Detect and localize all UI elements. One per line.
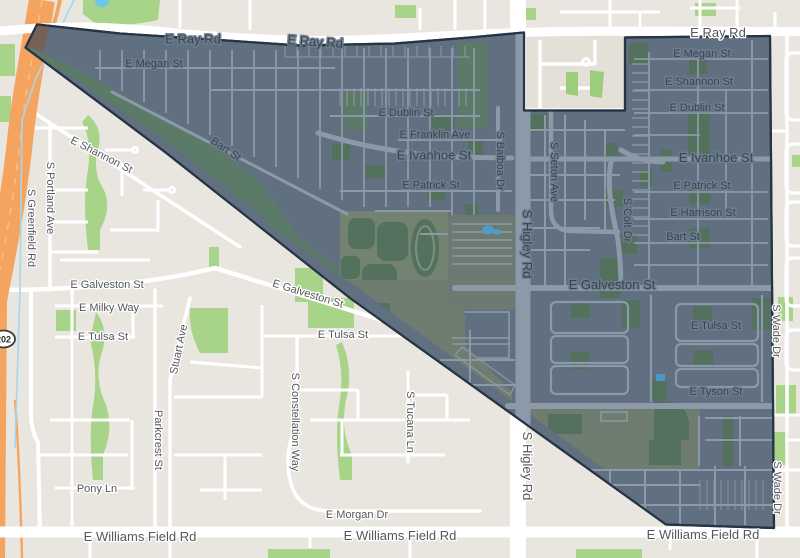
svg-text:Parkcrest St: Parkcrest St — [152, 410, 164, 470]
svg-text:S Greenfield Rd: S Greenfield Rd — [25, 189, 37, 267]
svg-text:E Morgan Dr: E Morgan Dr — [326, 509, 389, 521]
svg-text:S Colt Dr: S Colt Dr — [621, 198, 633, 243]
svg-text:S Balboa Dr: S Balboa Dr — [494, 131, 506, 191]
svg-text:S Tucana Ln: S Tucana Ln — [404, 391, 416, 453]
svg-text:E Williams Field Rd: E Williams Field Rd — [344, 528, 457, 543]
svg-text:E Ray Rd: E Ray Rd — [165, 32, 221, 47]
svg-text:S Wade Dr: S Wade Dr — [770, 304, 782, 358]
svg-text:S Constellation Way: S Constellation Way — [289, 373, 301, 472]
svg-text:Bart St: Bart St — [666, 231, 700, 243]
svg-text:E Harrison St: E Harrison St — [670, 207, 735, 219]
svg-text:E Megan St: E Megan St — [673, 48, 730, 60]
svg-text:E Milky Way: E Milky Way — [79, 302, 140, 314]
svg-text:E Williams Field Rd: E Williams Field Rd — [647, 527, 760, 542]
svg-text:E Galveston St: E Galveston St — [70, 279, 143, 291]
svg-text:E Williams Field Rd: E Williams Field Rd — [84, 529, 197, 544]
svg-text:E Franklin Ave: E Franklin Ave — [400, 129, 471, 141]
svg-text:E Dublin St: E Dublin St — [378, 107, 433, 119]
svg-text:S Wade Dr: S Wade Dr — [771, 461, 783, 515]
svg-text:E Patrick St: E Patrick St — [673, 180, 730, 192]
svg-text:E Patrick St: E Patrick St — [402, 180, 459, 192]
svg-text:Pony Ln: Pony Ln — [77, 483, 117, 495]
svg-text:202: 202 — [0, 335, 11, 345]
svg-text:E Shannon St: E Shannon St — [665, 76, 733, 88]
svg-text:E Ray Rd: E Ray Rd — [690, 25, 746, 40]
svg-text:E Galveston St: E Galveston St — [569, 277, 656, 292]
svg-text:S Seton Ave: S Seton Ave — [548, 142, 560, 202]
svg-text:E Tulsa St: E Tulsa St — [691, 320, 741, 332]
svg-text:S Higley Rd: S Higley Rd — [520, 210, 535, 279]
svg-text:E Tulsa St: E Tulsa St — [318, 329, 368, 341]
svg-text:E Ivanhoe St: E Ivanhoe St — [397, 148, 472, 163]
svg-text:E Dublin St: E Dublin St — [669, 102, 724, 114]
svg-text:E Tyson St: E Tyson St — [690, 386, 743, 398]
svg-text:E Tulsa St: E Tulsa St — [78, 331, 128, 343]
svg-text:S Portland Ave: S Portland Ave — [44, 162, 56, 235]
svg-text:E Megan St: E Megan St — [125, 58, 182, 70]
svg-text:E Ivanhoe St: E Ivanhoe St — [679, 150, 754, 165]
svg-text:S Higley Rd: S Higley Rd — [520, 432, 535, 501]
